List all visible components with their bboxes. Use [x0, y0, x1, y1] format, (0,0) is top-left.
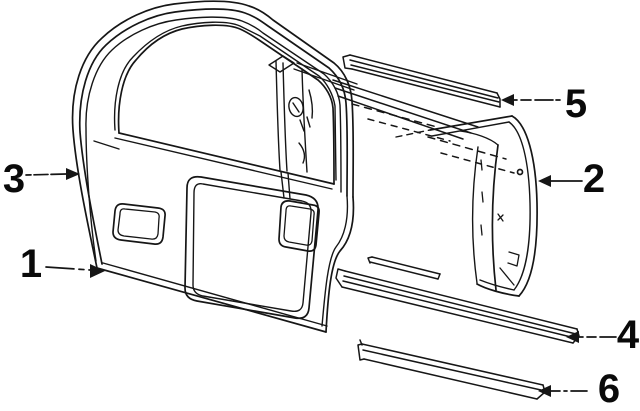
callout-2-arrow [538, 175, 582, 187]
door-bottom-edge [97, 268, 326, 332]
inner-panel-opening [185, 177, 318, 319]
arrowhead-right-icon [90, 264, 105, 278]
upper-body-side-molding [336, 257, 579, 343]
door-frame-outer-line [73, 1, 354, 268]
parts-diagram: 1 2 3 4 5 6 [0, 0, 640, 408]
door-shell [73, 1, 354, 332]
callout-3-arrow [26, 168, 80, 180]
pocket-cutout [113, 204, 165, 244]
arrowhead-left-icon [501, 94, 514, 106]
callout-5-arrow [501, 94, 562, 106]
regulator-top-bracket [269, 56, 294, 72]
callout-6-arrow [538, 385, 596, 397]
door-frame-second-line [80, 9, 348, 264]
belt-line [119, 133, 334, 184]
door-frame-third-line [86, 17, 341, 261]
arrowhead-left-icon [538, 385, 551, 397]
callout-4-label: 4 [613, 315, 640, 355]
panel-hole [518, 170, 523, 175]
mirror-flag-line [94, 141, 119, 149]
callout-2-label: 2 [579, 159, 609, 199]
callout-5-label: 5 [561, 84, 591, 124]
arrowhead-left-icon [538, 175, 551, 187]
regulator-access-cutout [279, 201, 319, 251]
door-bottom-hem [103, 263, 327, 326]
regulator-rail [283, 63, 287, 171]
diagram-line-art [0, 0, 640, 408]
regulator-rail [276, 61, 280, 170]
callout-6-label: 6 [594, 369, 624, 409]
callout-1-label: 1 [16, 244, 46, 284]
lower-body-side-molding [358, 340, 545, 399]
callout-3-label: 3 [0, 159, 29, 199]
